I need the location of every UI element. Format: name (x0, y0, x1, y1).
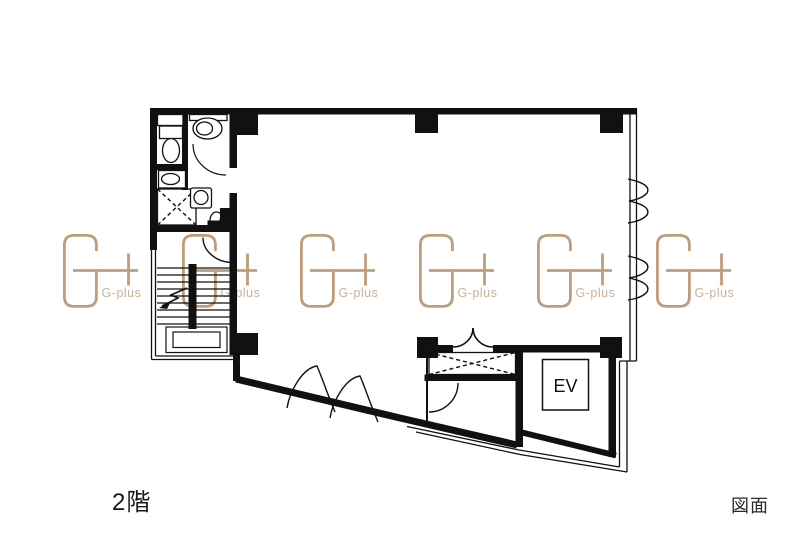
wall-toilet-right-upper (230, 114, 238, 168)
elevator-label: EV (553, 376, 577, 396)
stair-landing-outer (166, 327, 227, 353)
wall-top (150, 108, 637, 115)
column-top-right (600, 114, 623, 133)
wall-left (150, 108, 157, 250)
door-arc-corridor (429, 383, 458, 412)
toilet-bowl-inner (197, 122, 213, 135)
window-zigzag-icon (628, 256, 648, 300)
duct-shaft-x (429, 353, 516, 375)
floor-plan-page: G-plus G-plus G-plus G-plus G-plus G-plu… (0, 0, 800, 534)
drawing-label: 図面 (731, 492, 769, 518)
floor-label: 2階 (112, 482, 151, 517)
stair-landing-inner (173, 332, 220, 348)
column-stair-bottom (233, 333, 258, 355)
wall-under-toilet (157, 164, 182, 170)
sink-icon (162, 174, 180, 185)
wall-slant-main (236, 379, 517, 445)
elevator-box: EV (543, 360, 589, 411)
door-arc-stair-hall (203, 238, 233, 263)
hand-basin-icon (194, 191, 208, 205)
floor-plan: EV (0, 0, 800, 534)
window-zigzag-icon (628, 179, 648, 223)
column-top-mid (415, 114, 438, 133)
toilet-tank (160, 126, 183, 139)
toilet-shelf (158, 115, 184, 126)
door-arc-toilet-stall (193, 144, 226, 175)
double-door-left-leaf (453, 328, 473, 347)
double-door-right-leaf (473, 328, 493, 347)
wall-ev-right (609, 357, 617, 457)
wall-below-shaft (425, 375, 519, 382)
windows (287, 179, 648, 422)
window-fin-icon (330, 376, 378, 422)
stair-arrow-head (159, 301, 171, 309)
window-fin-icon (287, 366, 335, 412)
wash-counter-base (208, 221, 234, 227)
column-bottom-right (600, 337, 622, 358)
toilet-icon (163, 139, 180, 163)
